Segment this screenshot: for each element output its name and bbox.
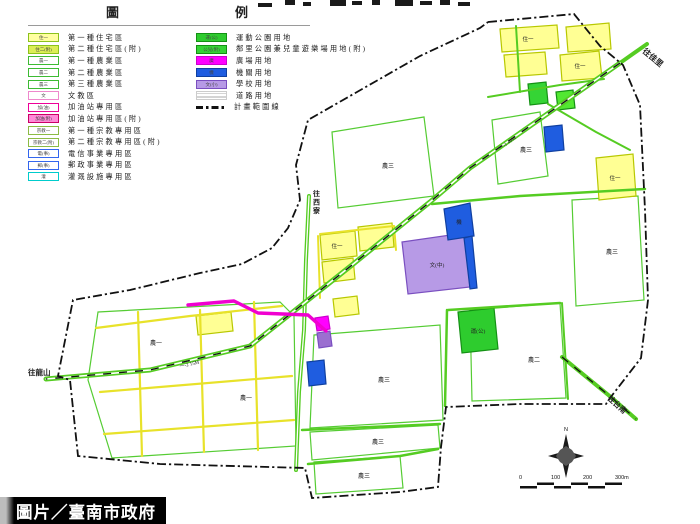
- map-zone: [528, 82, 548, 105]
- scalebar-label: 0: [519, 475, 522, 481]
- legend-item: 農一第一種農業區: [28, 55, 196, 67]
- legend-title-left: 圖: [106, 2, 119, 21]
- legend-item-label: 第一種農業區: [68, 56, 124, 66]
- map-zone-label: 住一: [522, 35, 534, 43]
- legend-swatch: 公兒(附): [196, 45, 227, 54]
- legend-item-label: 學校用地: [236, 79, 274, 89]
- legend-swatch: 郵(事): [28, 161, 59, 170]
- map-zone-label: 住一: [609, 174, 621, 182]
- map-label: 農三: [372, 438, 384, 446]
- scalebar-segment: [571, 483, 588, 486]
- map-label: 農三: [358, 472, 370, 480]
- legend-title: 圖 例: [28, 2, 310, 26]
- legend-item-label: 郵政事業專用區: [68, 160, 134, 170]
- scalebar-segment: [605, 483, 622, 486]
- legend-item: 住一第一種住宅區: [28, 32, 196, 44]
- legend-item-label: 鄰里公園兼兒童遊樂場用地(附): [236, 44, 367, 54]
- legend-item-label: 廣場用地: [236, 56, 274, 66]
- map-zone-label: 住一: [574, 62, 586, 70]
- map-zone: [566, 23, 611, 52]
- legend-item: 宗教二(附)第二種宗教專用區(附): [28, 136, 196, 148]
- legend-item-label: 第三種農業區: [68, 79, 124, 89]
- legend-item: 計畫範圍線: [196, 102, 426, 114]
- legend-right-column: 運(公)運動公園用地公兒(附)鄰里公園兼兒童遊樂場用地(附)廣廣場用地機機關用地…: [196, 32, 426, 113]
- scalebar-label: 200: [583, 475, 592, 481]
- legend-item-label: 第二種住宅區(附): [68, 44, 143, 54]
- caption-text: 圖片／臺南市政府: [16, 499, 156, 523]
- legend-swatch: [196, 91, 227, 100]
- legend-item-label: 加油站專用區(附): [68, 114, 143, 124]
- map-label: 往龍山: [28, 367, 51, 377]
- caption-bar: 圖片／臺南市政府: [0, 497, 166, 524]
- legend-swatch: 加油(附): [28, 114, 59, 123]
- map-label: 往佳里: [641, 46, 666, 69]
- legend-item-label: 第二種農業區: [68, 68, 124, 78]
- map-zone: [544, 125, 564, 152]
- legend-item: 電(事)電信事業專用區: [28, 148, 196, 160]
- map-zone: [307, 360, 326, 386]
- legend-item: 運(公)運動公園用地: [196, 32, 426, 44]
- legend-item: 郵(事)郵政事業專用區: [28, 160, 196, 172]
- map-road: [445, 310, 447, 406]
- map-zone-label: 機: [456, 218, 462, 226]
- legend-item: 住二(附)第二種住宅區(附): [28, 44, 196, 56]
- scalebar-segment: [537, 483, 554, 486]
- legend-left-column: 住一第一種住宅區住二(附)第二種住宅區(附)農一第一種農業區農二第二種農業區農三…: [28, 32, 196, 183]
- legend-item-label: 道路用地: [236, 91, 274, 101]
- map-zone-label: 住一: [331, 242, 343, 250]
- map-zone: [504, 52, 547, 77]
- legend-item-label: 第一種住宅區: [68, 33, 124, 43]
- legend-item-label: 第二種宗教專用區(附): [68, 137, 162, 147]
- compass-north-label: N: [564, 427, 568, 433]
- map-label: 農二: [528, 356, 540, 364]
- map-label: 農三: [520, 146, 532, 154]
- legend-item-label: 加油站專用區: [68, 102, 124, 112]
- legend-item: 道路用地: [196, 90, 426, 102]
- legend-swatch: 宗教一: [28, 126, 59, 135]
- legend-swatch: 灌: [28, 172, 59, 181]
- legend-swatch: 廣: [196, 56, 227, 65]
- legend-swatch: 宗教二(附): [28, 138, 59, 147]
- map-label: 農一: [240, 394, 252, 402]
- map-label: 農三: [378, 376, 390, 384]
- scalebar-label: 100: [551, 475, 560, 481]
- legend-title-right: 例: [235, 2, 248, 21]
- legend-swatch: 文: [28, 91, 59, 100]
- legend-item: 灌灌溉設施專用區: [28, 171, 196, 183]
- map-zone: [333, 296, 359, 317]
- legend-swatch: 電(事): [28, 149, 59, 158]
- legend-item: 機機關用地: [196, 67, 426, 79]
- legend-swatch: 加(油): [28, 103, 59, 112]
- legend-item: 文(小)學校用地: [196, 78, 426, 90]
- scalebar-label: 300m: [615, 475, 629, 481]
- map-zone-label: 文(中): [430, 261, 445, 269]
- legend-item: 農三第三種農業區: [28, 78, 196, 90]
- legend-item: 農二第二種農業區: [28, 67, 196, 79]
- map-zone-label: 運(公): [471, 328, 486, 335]
- legend-item: 加油(附)加油站專用區(附): [28, 113, 196, 125]
- compass-icon-inner: [556, 446, 576, 466]
- legend: 圖 例 住一第一種住宅區住二(附)第二種住宅區(附)農一第一種農業區農二第二種農…: [28, 2, 428, 183]
- map-label: 農三: [606, 248, 618, 256]
- legend-swatch: 機: [196, 68, 227, 77]
- legend-swatch: 住二(附): [28, 45, 59, 54]
- legend-swatch: [196, 106, 225, 108]
- legend-item: 宗教一第一種宗教專用區: [28, 125, 196, 137]
- map-label: 農一: [150, 339, 162, 347]
- legend-item: 公兒(附)鄰里公園兼兒童遊樂場用地(附): [196, 44, 426, 56]
- legend-item: 文文教區: [28, 90, 196, 102]
- legend-item-label: 灌溉設施專用區: [68, 172, 134, 182]
- legend-swatch: 農三: [28, 80, 59, 89]
- legend-item-label: 運動公園用地: [236, 33, 292, 43]
- legend-swatch: 農二: [28, 68, 59, 77]
- legend-item: 加(油)加油站專用區: [28, 102, 196, 114]
- legend-item-label: 機關用地: [236, 68, 274, 78]
- legend-item: 廣廣場用地: [196, 55, 426, 67]
- scalebar-segment: [554, 486, 571, 489]
- map-zone: [317, 331, 332, 348]
- legend-item-label: 電信事業專用區: [68, 149, 134, 159]
- scalebar-segment: [588, 486, 605, 489]
- legend-item-label: 第一種宗教專用區: [68, 126, 143, 136]
- legend-swatch: 住一: [28, 33, 59, 42]
- legend-item-label: 計畫範圍線: [234, 102, 281, 112]
- legend-swatch: 運(公): [196, 33, 227, 42]
- legend-swatch: 文(小): [196, 80, 227, 89]
- scalebar-segment: [520, 486, 537, 489]
- legend-item-label: 文教區: [68, 91, 96, 101]
- map-zone: [322, 258, 355, 283]
- map-label: 往西寮: [312, 189, 321, 215]
- legend-swatch: 農一: [28, 56, 59, 65]
